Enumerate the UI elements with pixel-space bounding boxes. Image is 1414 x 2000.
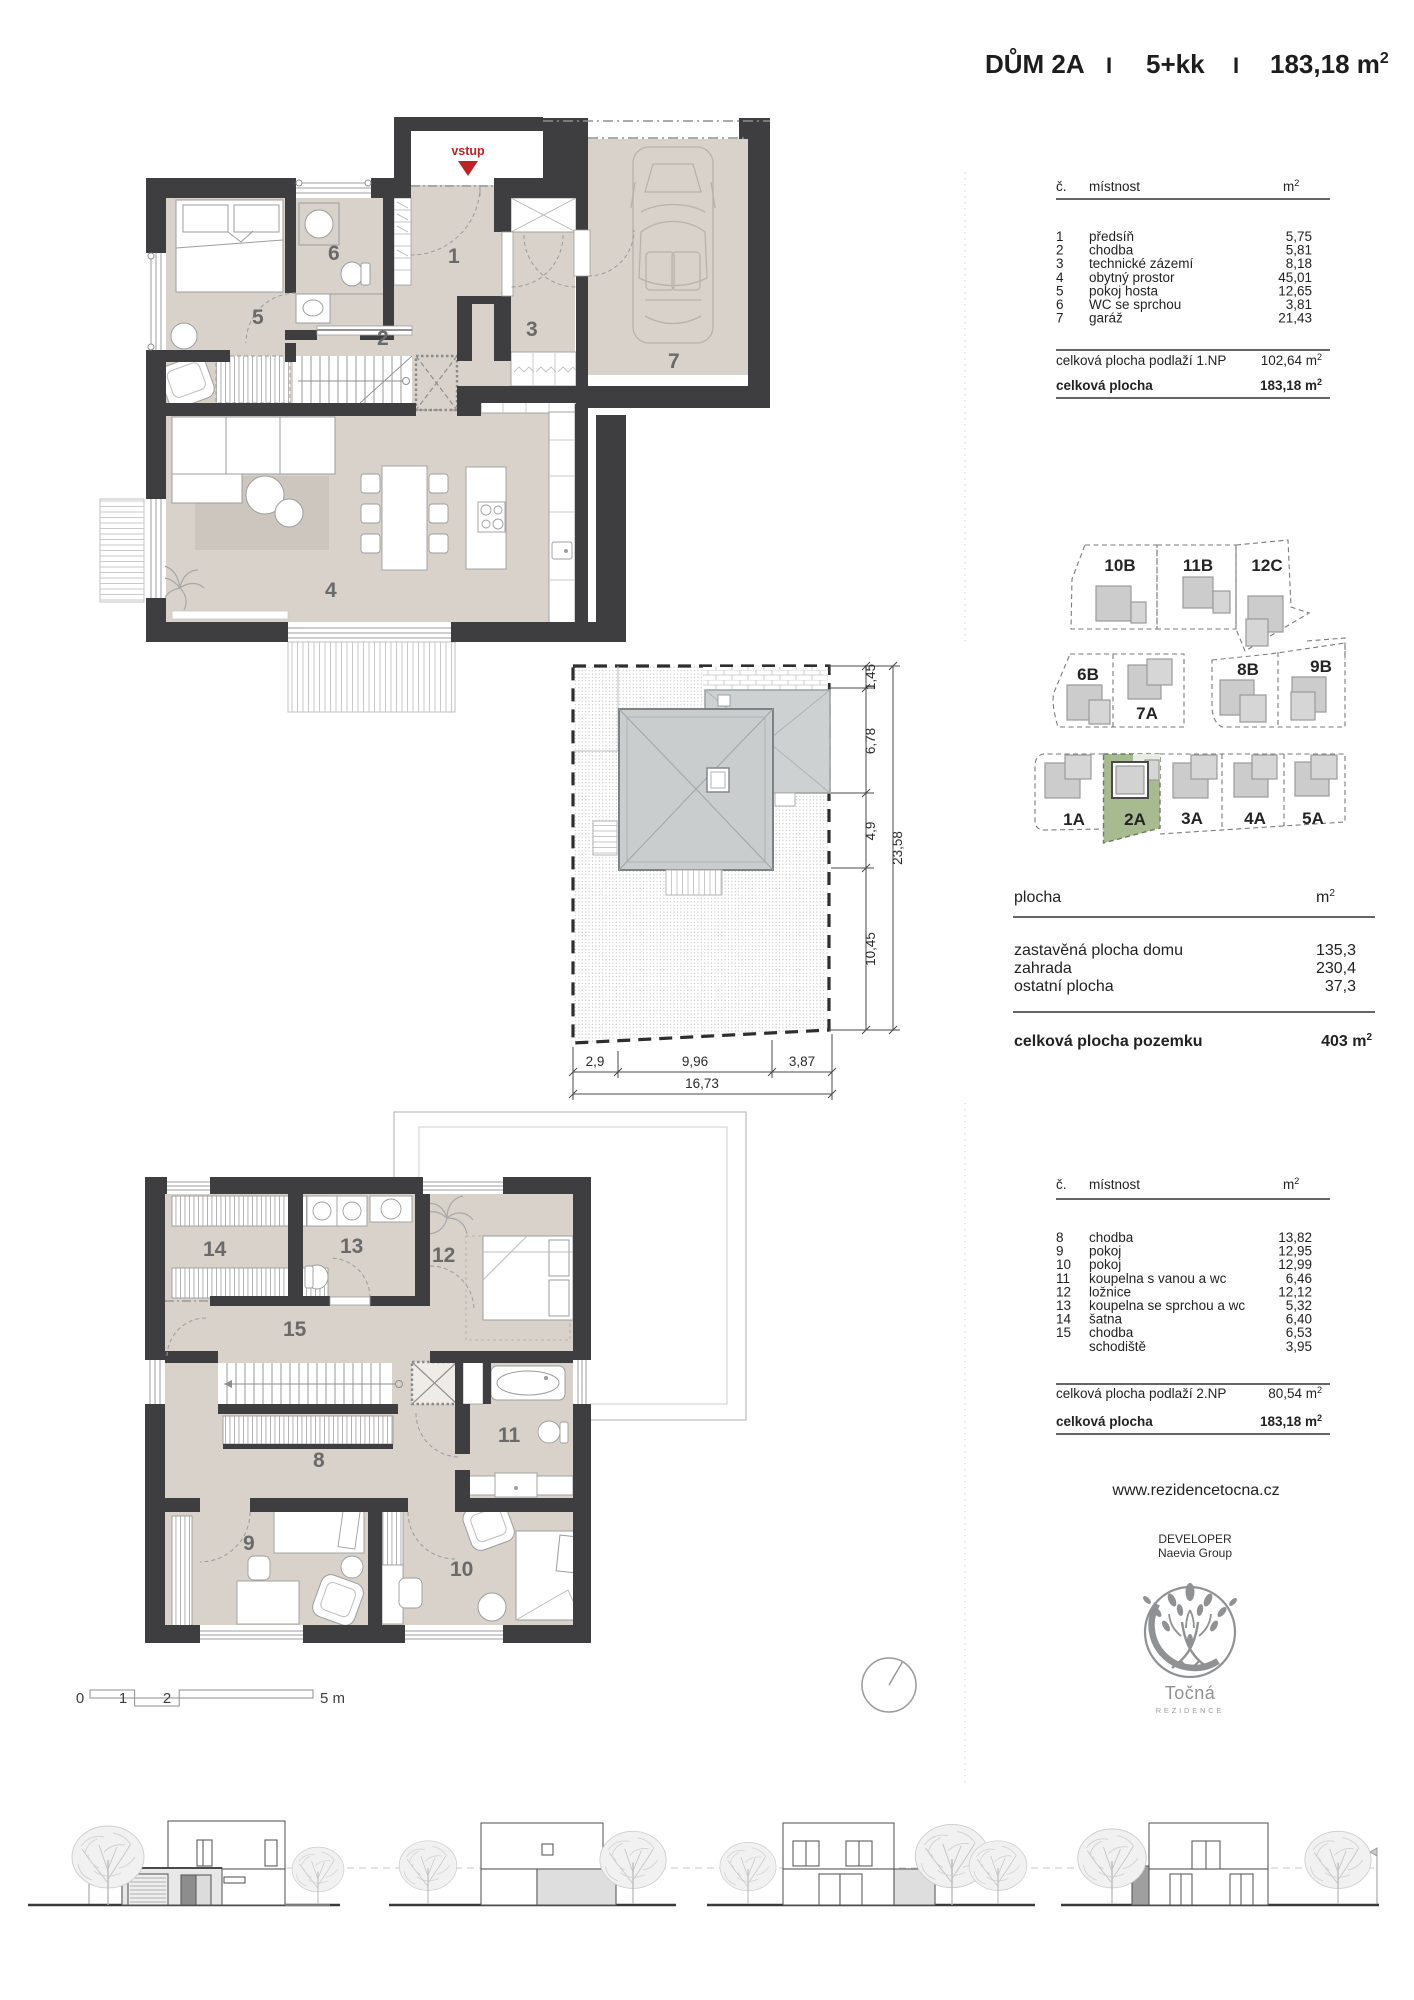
svg-text:4A: 4A bbox=[1244, 809, 1266, 828]
svg-text:I: I bbox=[1233, 53, 1239, 78]
svg-text:183,18 m2: 183,18 m2 bbox=[1260, 1413, 1322, 1429]
svg-text:I: I bbox=[1106, 53, 1112, 78]
svg-text:1: 1 bbox=[448, 245, 460, 268]
svg-text:1: 1 bbox=[119, 1690, 127, 1707]
svg-text:ostatní plocha: ostatní plocha bbox=[1014, 978, 1114, 995]
svg-text:7: 7 bbox=[668, 350, 680, 373]
svg-text:13: 13 bbox=[340, 1235, 363, 1258]
svg-text:zastavěná plocha domu: zastavěná plocha domu bbox=[1014, 942, 1183, 959]
svg-text:5 m: 5 m bbox=[320, 1690, 345, 1707]
svg-text:2: 2 bbox=[377, 327, 389, 350]
svg-text:9B: 9B bbox=[1310, 657, 1332, 676]
svg-text:10: 10 bbox=[450, 1558, 473, 1581]
svg-text:9: 9 bbox=[243, 1532, 255, 1555]
svg-text:plocha: plocha bbox=[1014, 889, 1061, 906]
svg-text:7A: 7A bbox=[1136, 704, 1158, 723]
svg-text:102,64 m2: 102,64 m2 bbox=[1261, 352, 1322, 368]
svg-text:2: 2 bbox=[163, 1690, 171, 1707]
svg-text:230,4: 230,4 bbox=[1316, 960, 1356, 977]
svg-text:Točná: Točná bbox=[1165, 1683, 1216, 1703]
svg-text:celková plocha podlaží 1.NP: celková plocha podlaží 1.NP bbox=[1056, 353, 1226, 368]
svg-text:místnost: místnost bbox=[1089, 179, 1140, 194]
svg-text:5A: 5A bbox=[1302, 809, 1324, 828]
svg-text:12: 12 bbox=[432, 1244, 455, 1267]
svg-text:2,9: 2,9 bbox=[586, 1054, 605, 1069]
svg-text:21,43: 21,43 bbox=[1278, 311, 1312, 326]
svg-text:celková plocha: celková plocha bbox=[1056, 1414, 1153, 1429]
svg-text:6: 6 bbox=[328, 242, 340, 265]
svg-text:14: 14 bbox=[203, 1238, 227, 1261]
svg-text:DŮM 2A: DŮM 2A bbox=[985, 47, 1085, 79]
svg-text:183,18 m2: 183,18 m2 bbox=[1260, 377, 1322, 393]
svg-text:403 m2: 403 m2 bbox=[1321, 1032, 1372, 1050]
svg-text:1,45: 1,45 bbox=[863, 664, 878, 690]
svg-text:0: 0 bbox=[76, 1690, 84, 1707]
svg-text:9,96: 9,96 bbox=[682, 1054, 708, 1069]
svg-text:37,3: 37,3 bbox=[1325, 978, 1356, 995]
svg-text:garáž: garáž bbox=[1089, 311, 1123, 326]
svg-text:vstup: vstup bbox=[451, 144, 485, 158]
svg-text:15: 15 bbox=[1056, 1325, 1071, 1340]
svg-text:135,3: 135,3 bbox=[1316, 942, 1356, 959]
svg-text:12C: 12C bbox=[1251, 556, 1282, 575]
svg-text:15: 15 bbox=[283, 1318, 307, 1341]
svg-text:č.: č. bbox=[1056, 179, 1067, 194]
svg-text:8: 8 bbox=[313, 1449, 325, 1472]
svg-text:REZIDENCE: REZIDENCE bbox=[1156, 1706, 1225, 1715]
svg-text:celková plocha: celková plocha bbox=[1056, 378, 1153, 393]
svg-text:11: 11 bbox=[498, 1424, 521, 1447]
svg-text:23,58: 23,58 bbox=[890, 831, 905, 865]
svg-text:Naevia Group: Naevia Group bbox=[1158, 1546, 1232, 1560]
svg-text:3,95: 3,95 bbox=[1286, 1339, 1312, 1354]
svg-text:80,54 m2: 80,54 m2 bbox=[1268, 1385, 1322, 1401]
svg-text:DEVELOPER: DEVELOPER bbox=[1158, 1532, 1232, 1546]
svg-text:celková plocha podlaží 2.NP: celková plocha podlaží 2.NP bbox=[1056, 1386, 1226, 1401]
svg-text:4,9: 4,9 bbox=[863, 822, 878, 841]
svg-text:3: 3 bbox=[526, 318, 538, 341]
svg-text:1A: 1A bbox=[1063, 810, 1085, 829]
svg-text:16,73: 16,73 bbox=[685, 1076, 719, 1091]
svg-text:5+kk: 5+kk bbox=[1146, 49, 1205, 79]
svg-text:celková plocha pozemku: celková plocha pozemku bbox=[1014, 1033, 1203, 1050]
svg-text:8B: 8B bbox=[1237, 660, 1259, 679]
svg-text:č.: č. bbox=[1056, 1177, 1067, 1192]
svg-text:6,78: 6,78 bbox=[863, 728, 878, 754]
svg-text:www.rezidencetocna.cz: www.rezidencetocna.cz bbox=[1111, 1482, 1279, 1499]
svg-text:10,45: 10,45 bbox=[863, 932, 878, 966]
svg-text:místnost: místnost bbox=[1089, 1177, 1140, 1192]
svg-text:6B: 6B bbox=[1077, 665, 1099, 684]
svg-text:zahrada: zahrada bbox=[1014, 960, 1072, 977]
svg-text:3A: 3A bbox=[1181, 809, 1203, 828]
svg-text:4: 4 bbox=[325, 579, 337, 602]
svg-text:7: 7 bbox=[1056, 311, 1064, 326]
svg-text:2A: 2A bbox=[1124, 810, 1146, 829]
svg-text:3,87: 3,87 bbox=[789, 1054, 815, 1069]
svg-text:schodiště: schodiště bbox=[1089, 1339, 1146, 1354]
svg-text:5: 5 bbox=[252, 306, 264, 329]
svg-text:10B: 10B bbox=[1104, 556, 1135, 575]
svg-text:183,18 m2: 183,18 m2 bbox=[1270, 49, 1389, 79]
svg-text:11B: 11B bbox=[1183, 556, 1213, 575]
